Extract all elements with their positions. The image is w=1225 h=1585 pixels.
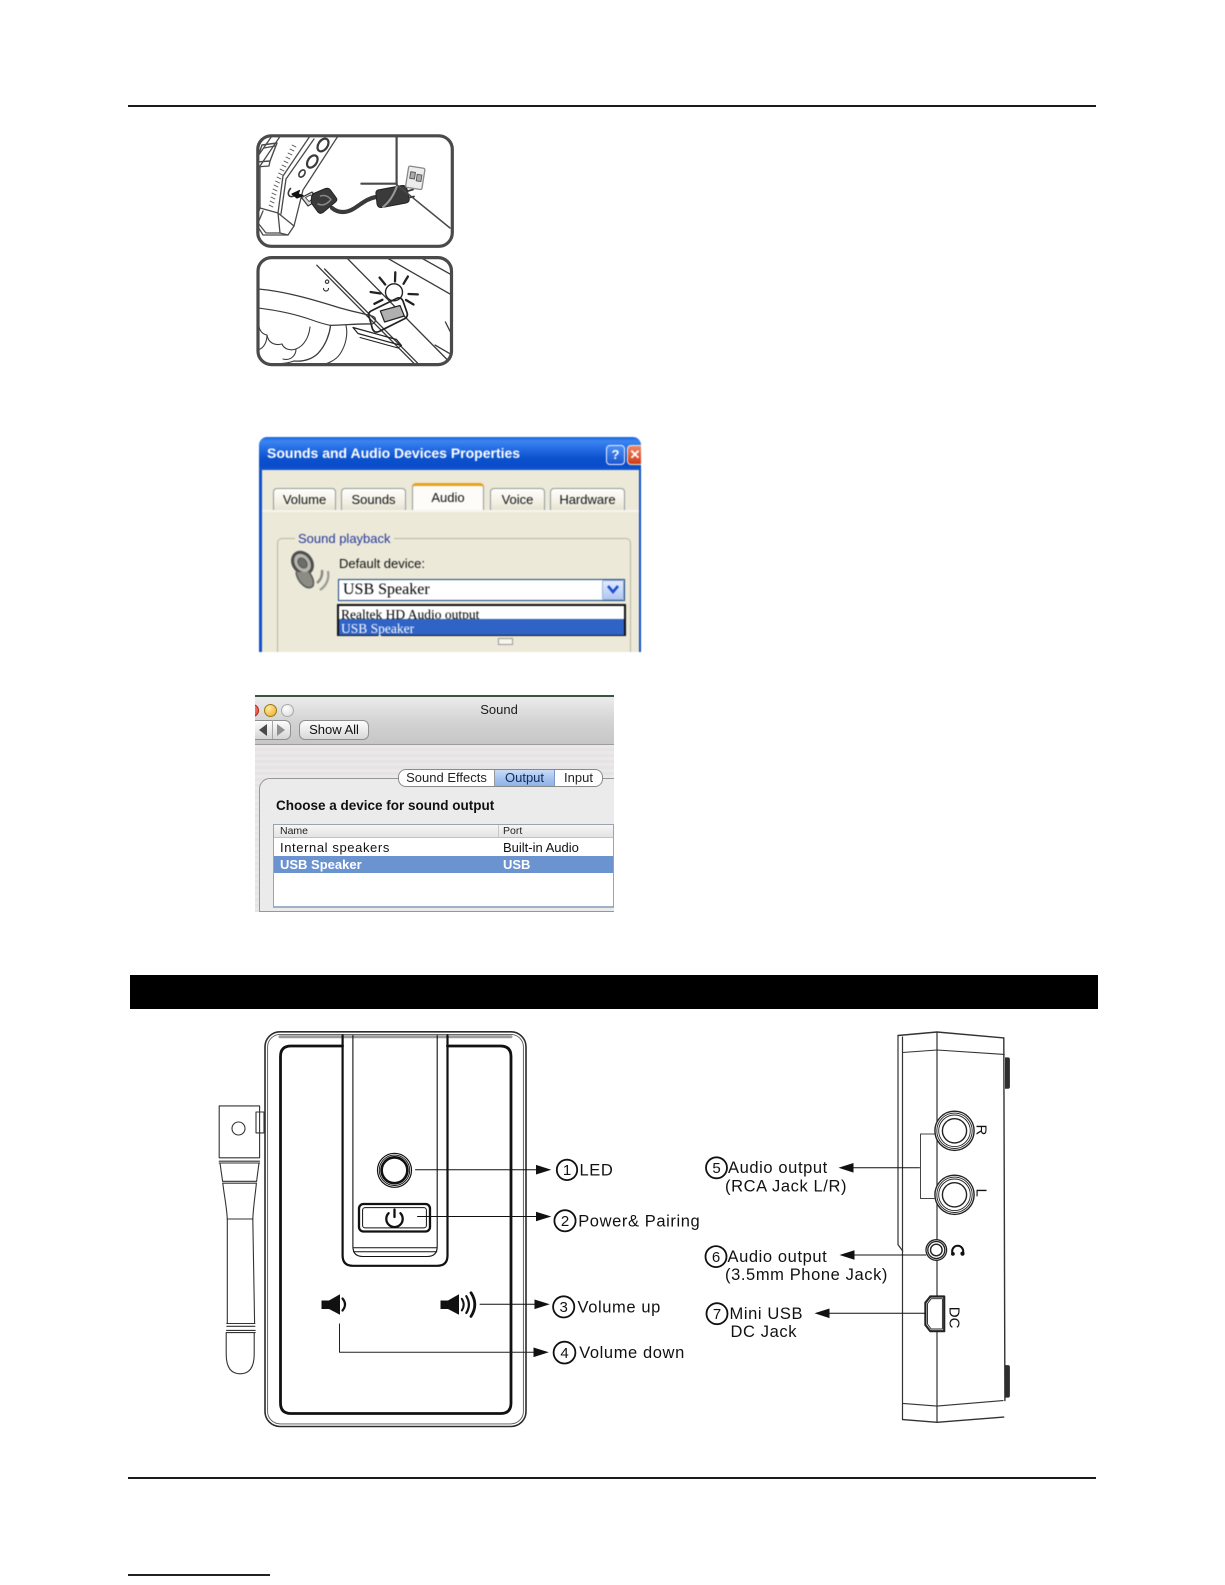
svg-text:Volume up: Volume up bbox=[578, 1298, 661, 1316]
svg-text:2: 2 bbox=[561, 1213, 569, 1230]
svg-text:Volume down: Volume down bbox=[579, 1344, 685, 1362]
svg-text:1: 1 bbox=[563, 1162, 571, 1179]
svg-text:(3.5mm Phone Jack): (3.5mm Phone Jack) bbox=[725, 1266, 888, 1284]
svg-text:3: 3 bbox=[560, 1299, 568, 1316]
svg-text:5: 5 bbox=[712, 1160, 720, 1177]
svg-text:(RCA Jack L/R): (RCA Jack L/R) bbox=[725, 1178, 847, 1196]
svg-text:Power& Pairing: Power& Pairing bbox=[578, 1212, 700, 1230]
svg-text:7: 7 bbox=[713, 1306, 721, 1323]
svg-text:6: 6 bbox=[712, 1249, 720, 1266]
svg-text:Audio output: Audio output bbox=[728, 1159, 828, 1177]
svg-text:Audio output: Audio output bbox=[728, 1248, 828, 1266]
svg-text:4: 4 bbox=[560, 1345, 568, 1362]
svg-text:Mini USB: Mini USB bbox=[730, 1305, 804, 1323]
svg-text:L: L bbox=[973, 1189, 990, 1197]
svg-text:DC Jack: DC Jack bbox=[731, 1323, 798, 1341]
svg-text:DC: DC bbox=[945, 1307, 962, 1329]
svg-text:R: R bbox=[973, 1125, 990, 1136]
svg-text:LED: LED bbox=[580, 1161, 614, 1179]
